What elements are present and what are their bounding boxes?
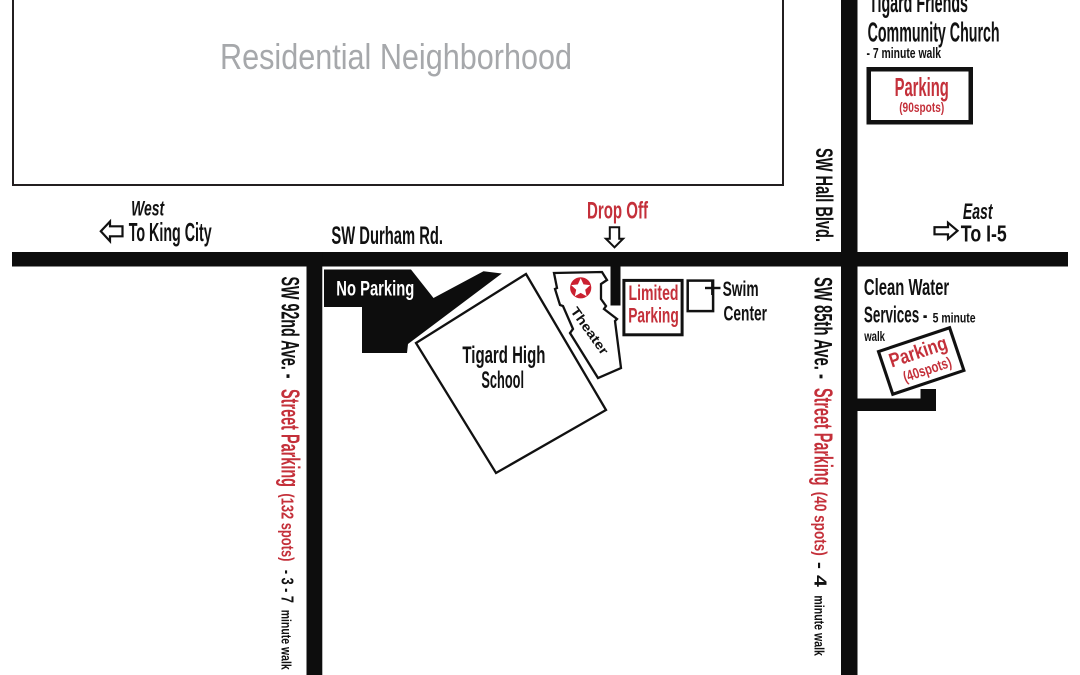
svg-text:- 4: - 4	[811, 562, 831, 587]
svg-text:Center: Center	[724, 301, 768, 325]
svg-text:- 7 minute walk: - 7 minute walk	[867, 45, 942, 62]
svg-text:Street Parking: Street Parking	[809, 388, 839, 486]
svg-text:Services -: Services -	[864, 302, 928, 328]
svg-text:Parking: Parking	[628, 304, 679, 328]
svg-text:Clean Water: Clean Water	[864, 274, 949, 300]
svg-text:Limited: Limited	[629, 281, 679, 305]
svg-text:Residential Neighborhood: Residential Neighborhood	[220, 36, 572, 77]
svg-text:Parking: Parking	[895, 74, 949, 102]
svg-text:Swim: Swim	[723, 277, 759, 301]
svg-text:minute walk: minute walk	[812, 595, 827, 656]
svg-text:Tigard High: Tigard High	[462, 342, 545, 369]
svg-text:(90spots): (90spots)	[899, 99, 944, 115]
svg-text:No Parking: No Parking	[336, 276, 414, 300]
svg-text:Street Parking: Street Parking	[276, 389, 306, 487]
svg-text:5 minute: 5 minute	[933, 311, 976, 327]
svg-text:- 3 - 7: - 3 - 7	[278, 570, 298, 603]
svg-text:Community Church: Community Church	[868, 17, 1000, 48]
svg-text:To I-5: To I-5	[961, 221, 1007, 247]
svg-text:SW Hall Blvd.: SW Hall Blvd.	[810, 148, 837, 242]
svg-text:minute walk: minute walk	[279, 610, 294, 670]
svg-text:(132 spots): (132 spots)	[278, 493, 298, 561]
svg-text:Drop Off: Drop Off	[587, 198, 649, 225]
svg-text:SW Durham Rd.: SW Durham Rd.	[331, 222, 443, 250]
svg-text:(40 spots): (40 spots)	[811, 492, 831, 556]
svg-text:SW 85th Ave. -: SW 85th Ave. -	[809, 277, 837, 379]
svg-text:walk: walk	[863, 329, 885, 344]
svg-text:School: School	[481, 367, 524, 394]
svg-text:Tigard Friends: Tigard Friends	[869, 0, 968, 18]
svg-text:SW 92nd Ave. -: SW 92nd Ave. -	[276, 277, 304, 379]
svg-text:To King City: To King City	[129, 217, 212, 247]
